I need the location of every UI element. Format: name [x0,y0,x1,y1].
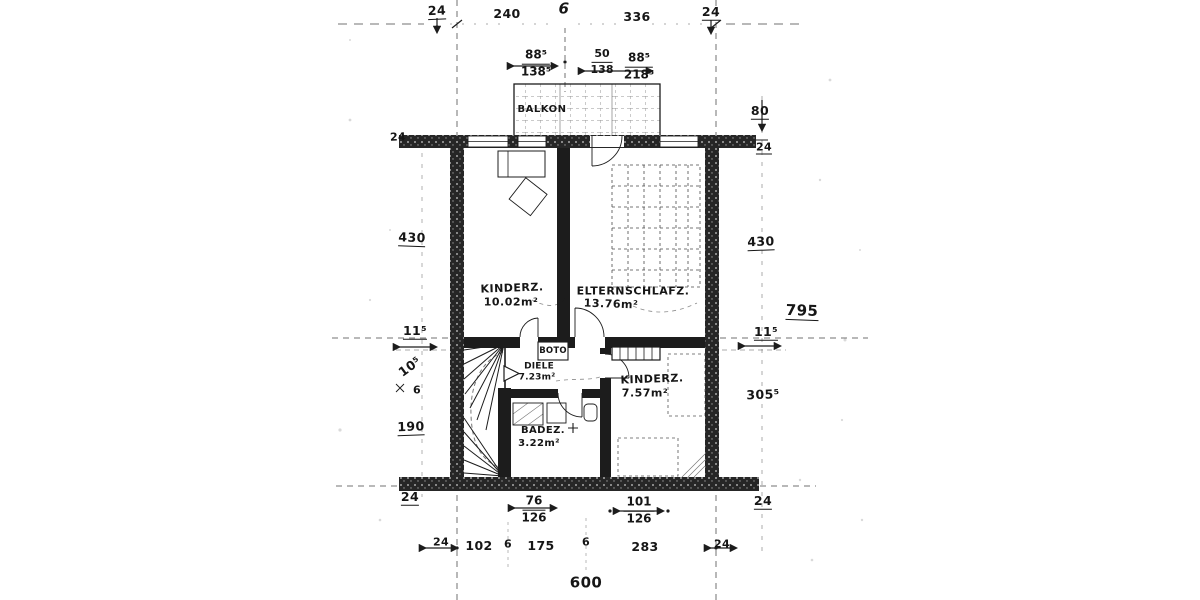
bed-kinderz2 [618,438,678,476]
dim-right-430: 430 [747,235,775,250]
wall-stair-bath [498,388,511,477]
dim-top-wall-24-right: 24 [702,6,720,21]
dim-top-240: 240 [493,8,520,21]
dim-dot-5 [435,25,438,28]
dim-top-axis-6: 6 [558,1,569,16]
room-area-kinderz2: 7.57m² [622,388,668,399]
room-label-eltern: ELTERNSCHLAFZ. [577,286,690,297]
dim-left-wall-24-bottom: 24 [401,491,419,506]
entry-arrow-diele [504,366,519,381]
fraction-denominator: 126 [626,512,651,527]
bed-kinderz1 [498,151,545,177]
dim-left-430: 430 [398,231,426,246]
dim-fraction-50-138: 50 138 [591,48,614,76]
dim-top-336: 336 [623,11,650,24]
bath-basin [547,403,566,423]
wall-mid-3 [605,337,705,348]
fraction-denominator: 218⁵ [624,68,654,83]
dim-fraction-885-1385: 88⁵ 138⁵ [521,49,551,80]
door-arc-eltern [575,308,604,337]
bath-tub-hatch [513,403,543,425]
wall-bottom [399,477,759,491]
stair-winder-bottom [464,418,503,476]
wall-kinderz2-left-a [600,348,611,354]
dim-top-wall-24-left: 24 [428,4,447,19]
tick-6-left [396,384,404,392]
door-arc-kinderz1 [520,318,538,337]
leader-diele [556,376,602,381]
dim-fraction-885-2185: 88⁵ 218⁵ [624,52,654,83]
room-label-boto: BOTO [539,347,567,356]
wall-left [450,135,464,487]
room-area-diele: 7.23m² [519,374,556,383]
dim-dot-1 [608,509,611,512]
fraction-numerator: 76 [523,495,546,511]
wall-right [705,135,719,487]
floorplan-canvas: 24 240 6 336 24 88⁵ 138⁵ 50 138 88⁵ 218⁵… [0,0,1200,600]
dim-fraction-76-126: 76 126 [521,495,546,526]
room-label-kinderz1: KINDERZ. [480,281,543,294]
fraction-numerator: 50 [591,48,612,63]
wall-partition-bedrooms [557,148,570,338]
dim-bottom-175: 175 [527,540,554,553]
dim-bottom-6a: 6 [504,538,512,549]
fraction-numerator: 101 [623,496,654,512]
wall-bath-top-2 [582,389,600,398]
dim-right-3055: 305⁵ [746,388,780,402]
interior-walls [464,148,705,477]
dim-left-115: 11⁵ [403,325,427,340]
wardrobe-outline [612,165,700,287]
bath-wc [584,404,597,421]
room-area-kinderz1: 10.02m² [484,297,539,308]
fraction-denominator: 138 [591,63,614,77]
wardrobe-rows [612,186,700,270]
tick-marks-top [452,20,721,28]
wardrobe-eltern [612,165,700,287]
dim-right-total-795: 795 [785,303,818,321]
bath-cross-mark [568,423,578,433]
room-label-badez: BADEZ. [521,426,565,436]
fraction-numerator: 88⁵ [522,49,550,65]
dim-bottom-total-600: 600 [570,576,603,591]
chair-kinderz1 [509,178,547,216]
room-area-eltern: 13.76m² [584,298,639,311]
room-label-diele: DIELE [524,363,554,372]
dim-dot-2 [666,509,669,512]
wall-kinderz2-left-b [600,378,611,477]
hatch-kinderz2-corner [682,454,705,477]
dim-right-wall-24-bottom: 24 [754,495,772,510]
dim-left-wall-24: 24 [390,131,406,143]
wall-bath-top-1 [511,389,558,398]
balcony-door-opening [590,136,624,147]
dim-left-6: 6 [413,385,421,396]
fraction-denominator: 138⁵ [521,65,551,80]
door-arc-bad [558,393,582,417]
dim-dot-6 [563,60,566,63]
fraction-numerator: 88⁵ [625,52,653,68]
wall-mid-1 [464,337,520,348]
dim-bottom-102: 102 [465,540,492,553]
dim-right-115: 11⁵ [754,326,778,341]
dim-left-row-24: 24 [433,537,449,548]
dim-dot-3 [455,546,458,549]
wardrobe-kinderz2 [668,354,705,416]
dim-fraction-101-126: 101 126 [623,496,654,527]
leader-eltern [633,303,697,312]
dim-bottom-6b: 6 [582,536,590,547]
room-area-badez: 3.22m² [518,439,560,449]
dim-right-wall-24: 24 [756,142,772,155]
room-label-balkon: BALKON [518,105,567,115]
exterior-walls [399,135,759,491]
dim-bottom-283: 283 [631,541,658,554]
wardrobe-cols [628,165,688,287]
dim-right-80: 80 [751,105,769,120]
fraction-denominator: 126 [521,511,546,526]
dim-right-row-24: 24 [714,539,730,550]
dim-left-190: 190 [397,420,425,435]
room-label-kinderz2: KINDERZ. [620,372,683,385]
